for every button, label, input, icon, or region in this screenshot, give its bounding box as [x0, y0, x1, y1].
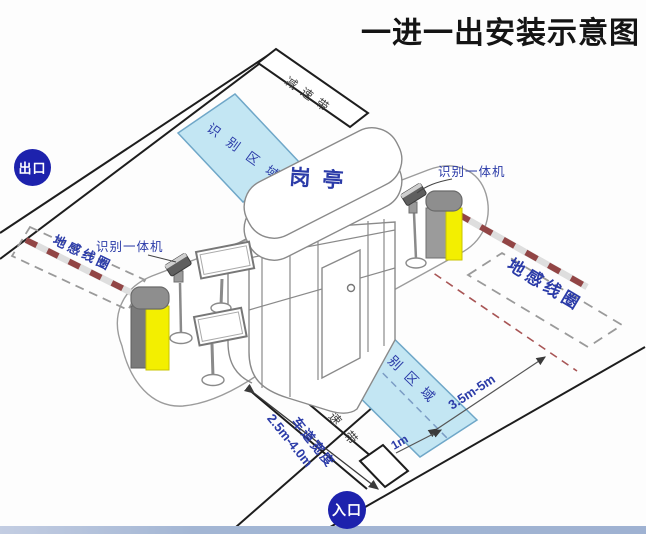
entrance-badge: 入口 [328, 491, 366, 529]
booth-door-handle [348, 285, 355, 292]
entrance-barrier-machine [426, 191, 462, 260]
entrance-badge-label: 入口 [332, 500, 362, 520]
entrance-camera-label: 识别一体机 [438, 165, 506, 179]
bottom-edge-strip [0, 526, 646, 534]
diagram-canvas: 一进一出安装示意图 出口 入口 减速带 识别区域 [0, 0, 646, 534]
exit-barrier-machine [131, 287, 169, 370]
exit-speed-bump-strip [258, 49, 368, 127]
diagram-title: 一进一出安装示意图 [361, 8, 640, 52]
exit-camera-label: 识别一体机 [96, 240, 164, 254]
loop-distance-dimension-line [437, 357, 545, 429]
booth-door [322, 250, 360, 378]
booth-label: 岗亭 [289, 165, 357, 194]
exit-camera-pointer-line [148, 255, 176, 262]
entrance-ground-loop [468, 253, 622, 347]
installation-diagram: 减速带 识别区域 减速带 车道宽度 2.5m-4.0m 识别区域 [0, 0, 646, 534]
exit-badge: 出口 [14, 149, 51, 186]
exit-badge-label: 出口 [18, 158, 46, 177]
